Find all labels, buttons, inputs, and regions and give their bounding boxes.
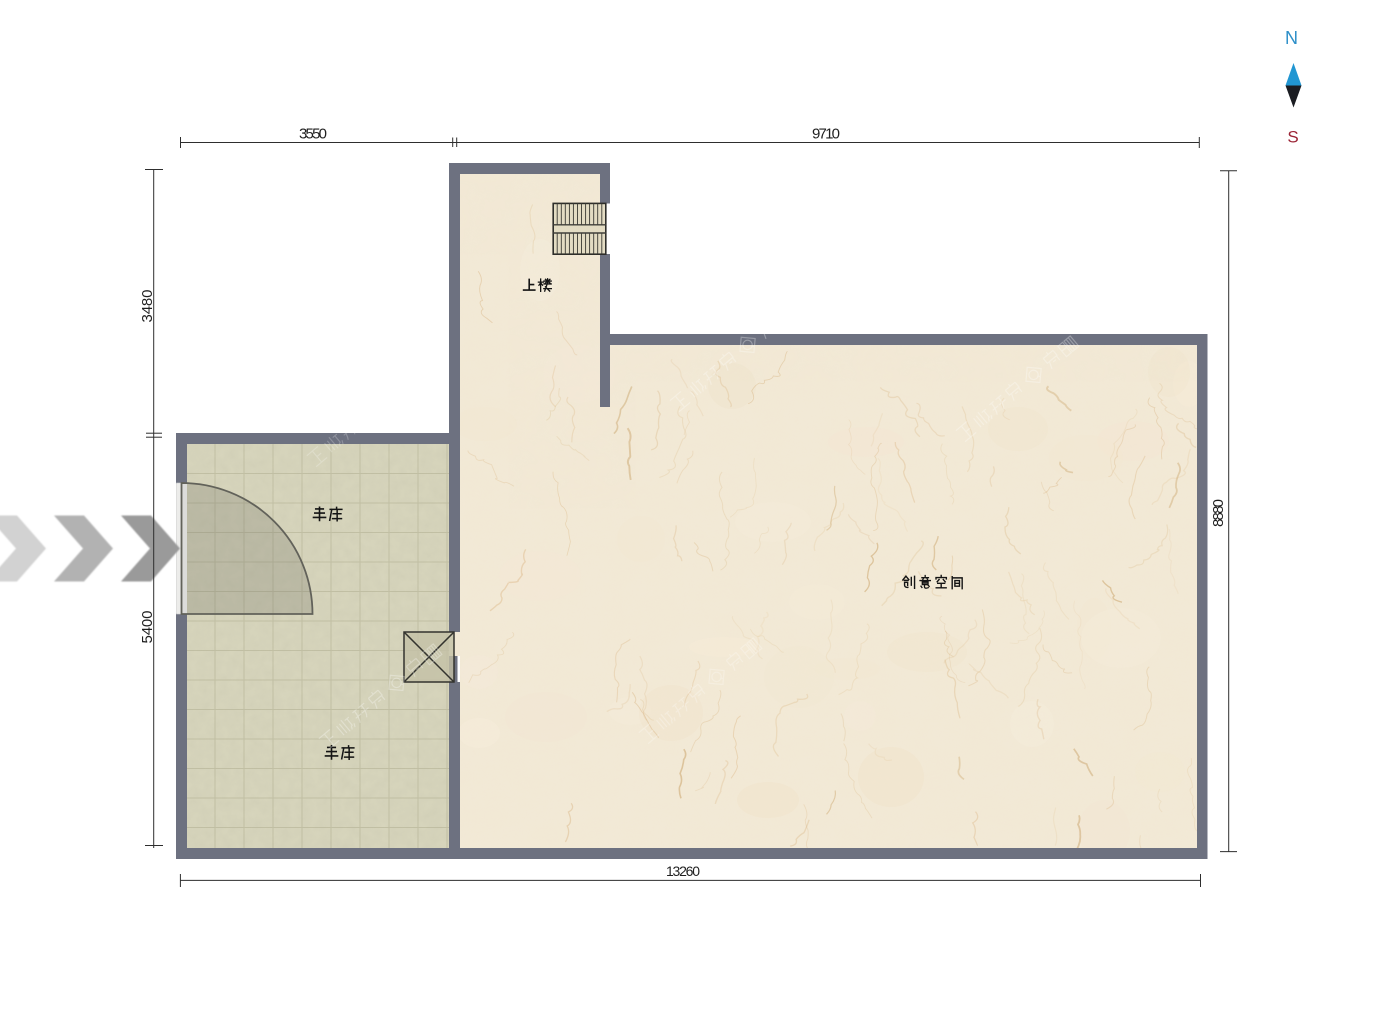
svg-text:9710: 9710	[812, 126, 840, 143]
svg-text:3480: 3480	[139, 290, 156, 323]
svg-text:S: S	[1287, 128, 1298, 147]
svg-text:5400: 5400	[139, 611, 156, 644]
svg-text:N: N	[1285, 28, 1298, 48]
svg-text:13260: 13260	[666, 863, 700, 879]
svg-text:3550: 3550	[299, 126, 327, 143]
svg-text:8880: 8880	[1210, 499, 1227, 527]
